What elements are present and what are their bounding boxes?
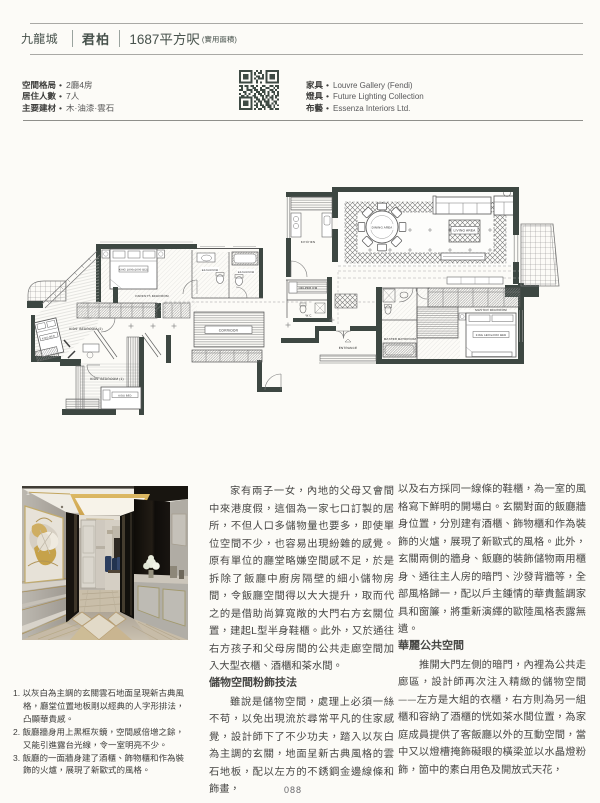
svg-text:LIVING AREA: LIVING AREA: [453, 229, 476, 233]
svg-text:ENTRANCE: ENTRANCE: [339, 346, 358, 350]
svg-text:W.C.: W.C.: [305, 314, 312, 318]
svg-text:KIDS BED: KIDS BED: [118, 394, 131, 397]
svg-text:HELPER RM: HELPER RM: [299, 286, 318, 290]
svg-text:KIDS' BEDROOM (1): KIDS' BEDROOM (1): [90, 377, 124, 381]
svg-text:1: 1: [26, 490, 30, 497]
svg-text:KING 1800x2000 BED: KING 1800x2000 BED: [119, 269, 149, 272]
svg-text:MASTER BEDROOM: MASTER BEDROOM: [475, 308, 507, 312]
svg-text:CORRIDOR: CORRIDOR: [219, 328, 239, 332]
svg-text:BATHROOM: BATHROOM: [202, 269, 218, 272]
svg-text:DINING AREA: DINING AREA: [372, 226, 393, 230]
svg-text:BATHROOM: BATHROOM: [238, 271, 254, 274]
svg-text:KITCHEN: KITCHEN: [301, 240, 316, 244]
svg-text:PARENTS BEDROOM: PARENTS BEDROOM: [135, 294, 169, 298]
svg-text:MASTER BATHROOM: MASTER BATHROOM: [384, 337, 417, 341]
svg-text:KING 1800x2000 BED: KING 1800x2000 BED: [476, 334, 507, 337]
